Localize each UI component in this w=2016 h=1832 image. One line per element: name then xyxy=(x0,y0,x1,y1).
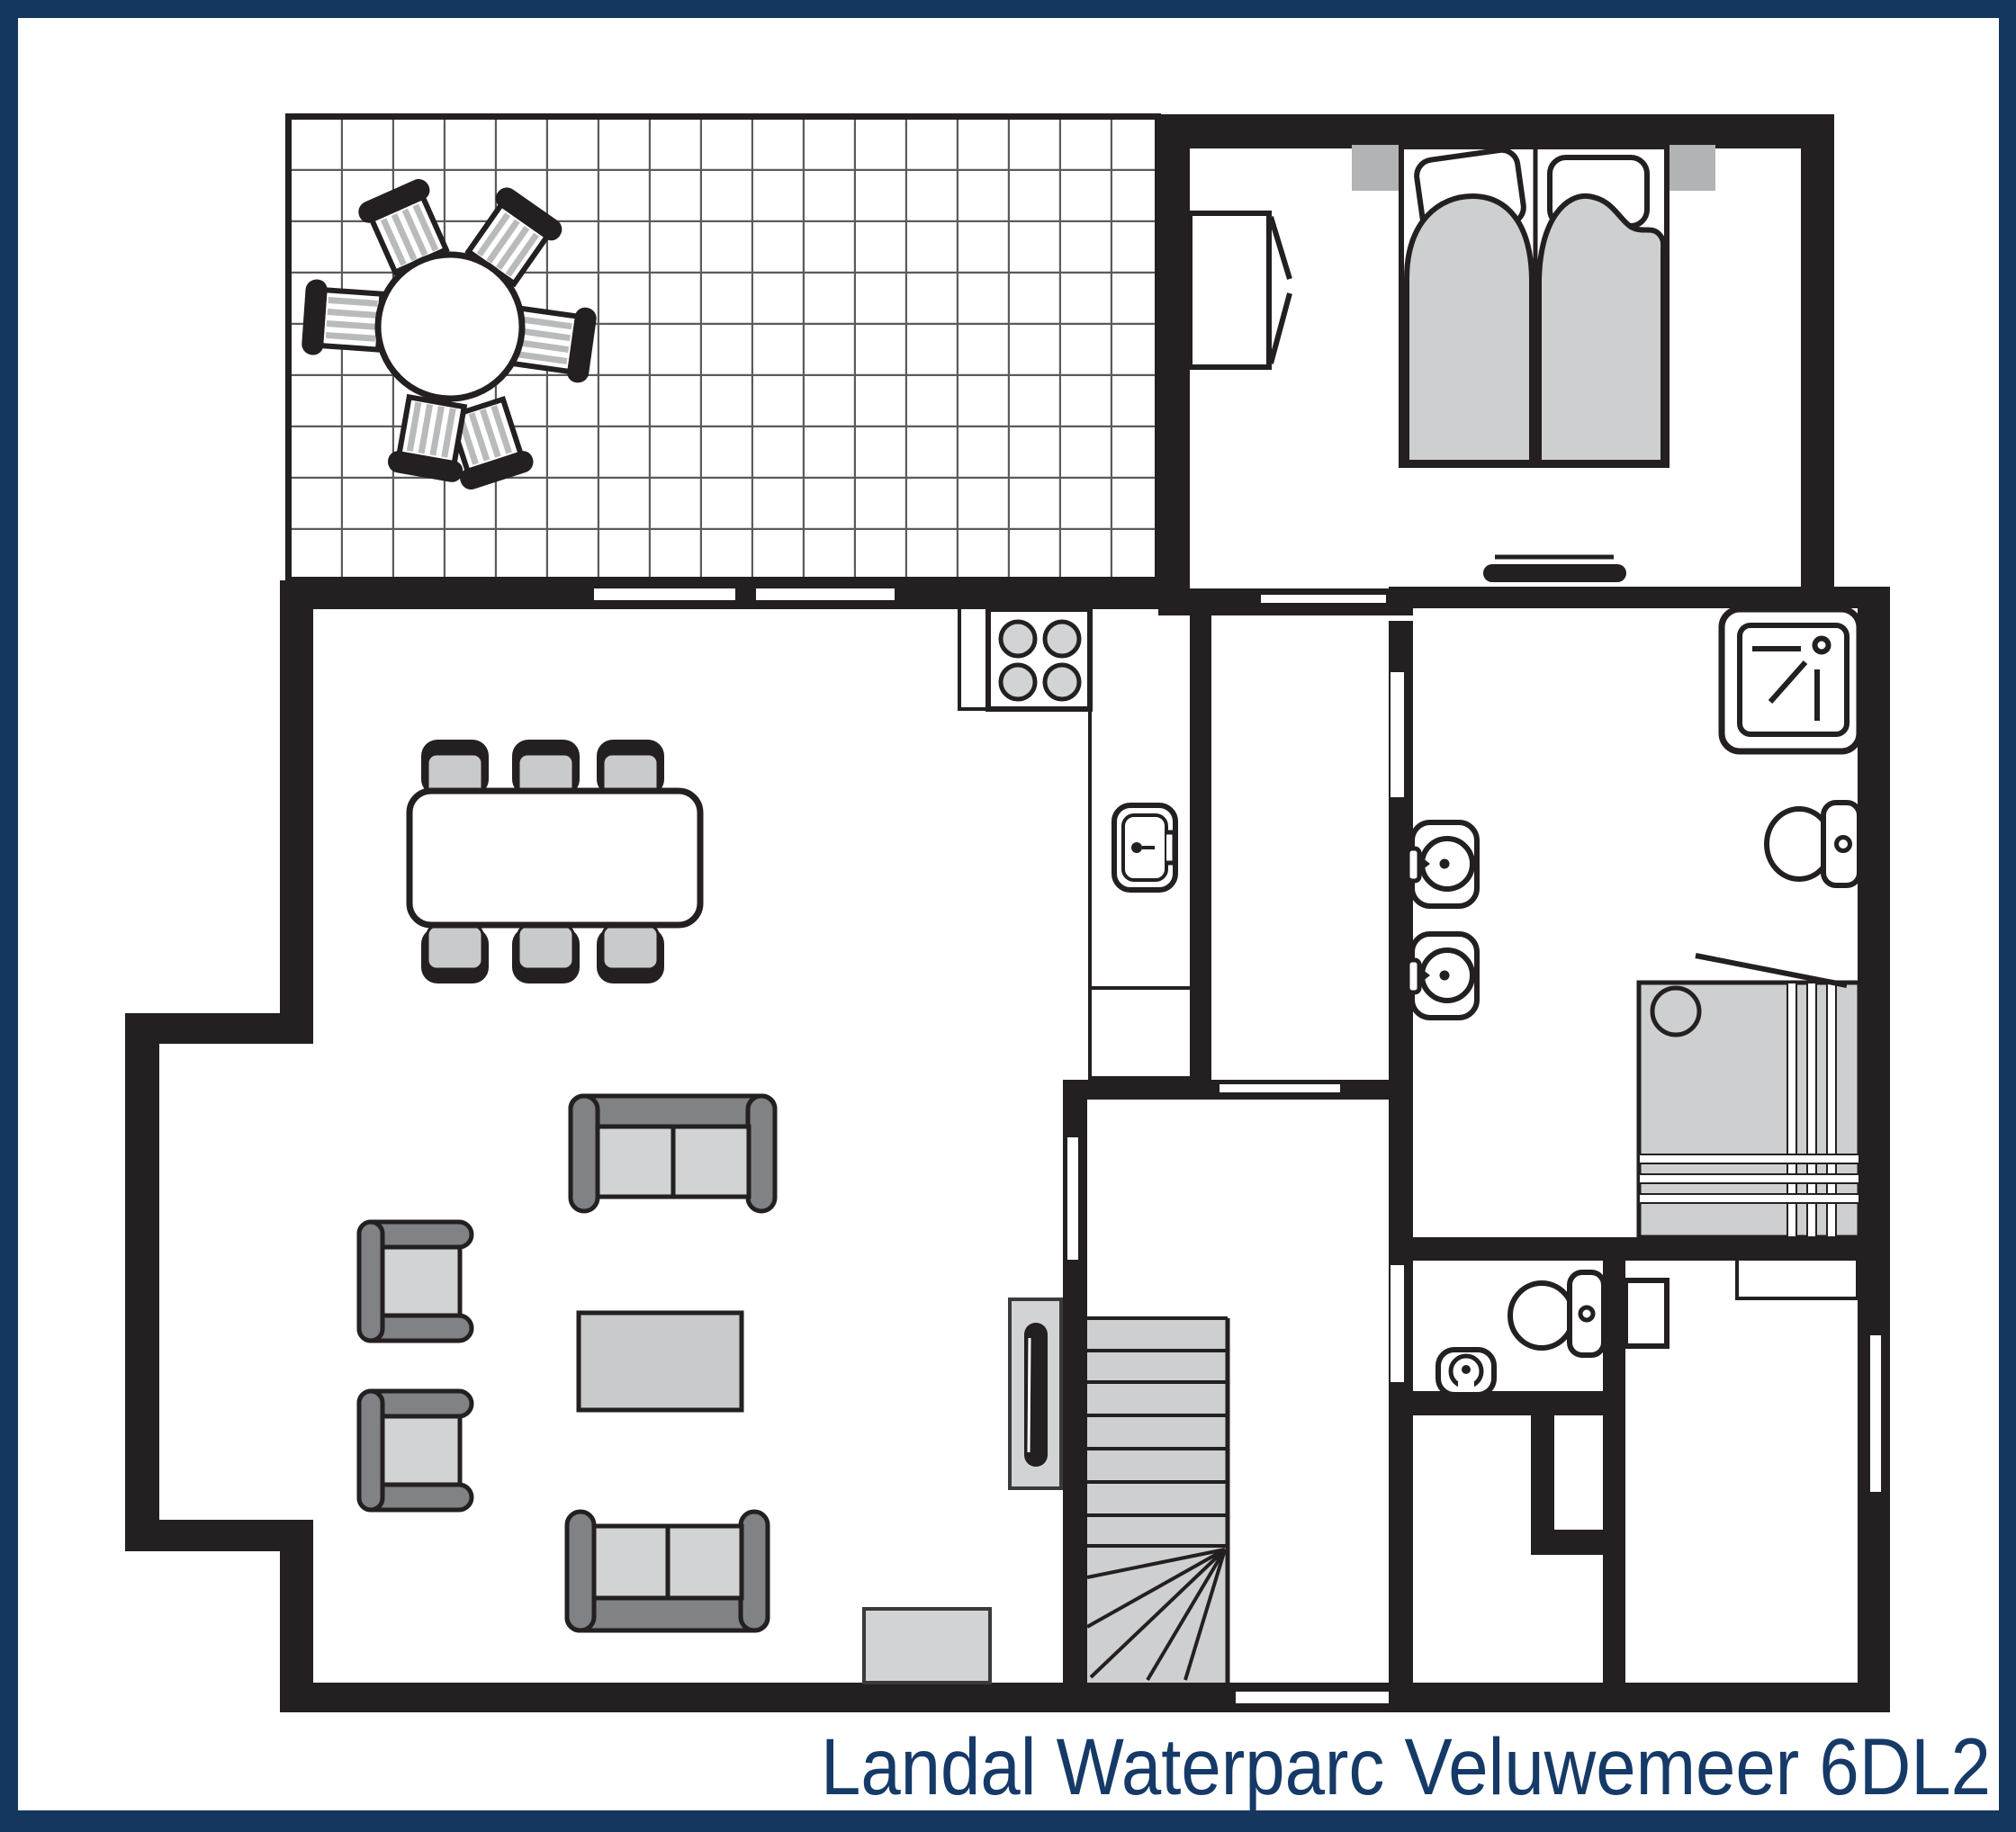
svg-text:Landal Waterparc Veluwemeer 6D: Landal Waterparc Veluwemeer 6DL2 xyxy=(821,1721,1991,1811)
